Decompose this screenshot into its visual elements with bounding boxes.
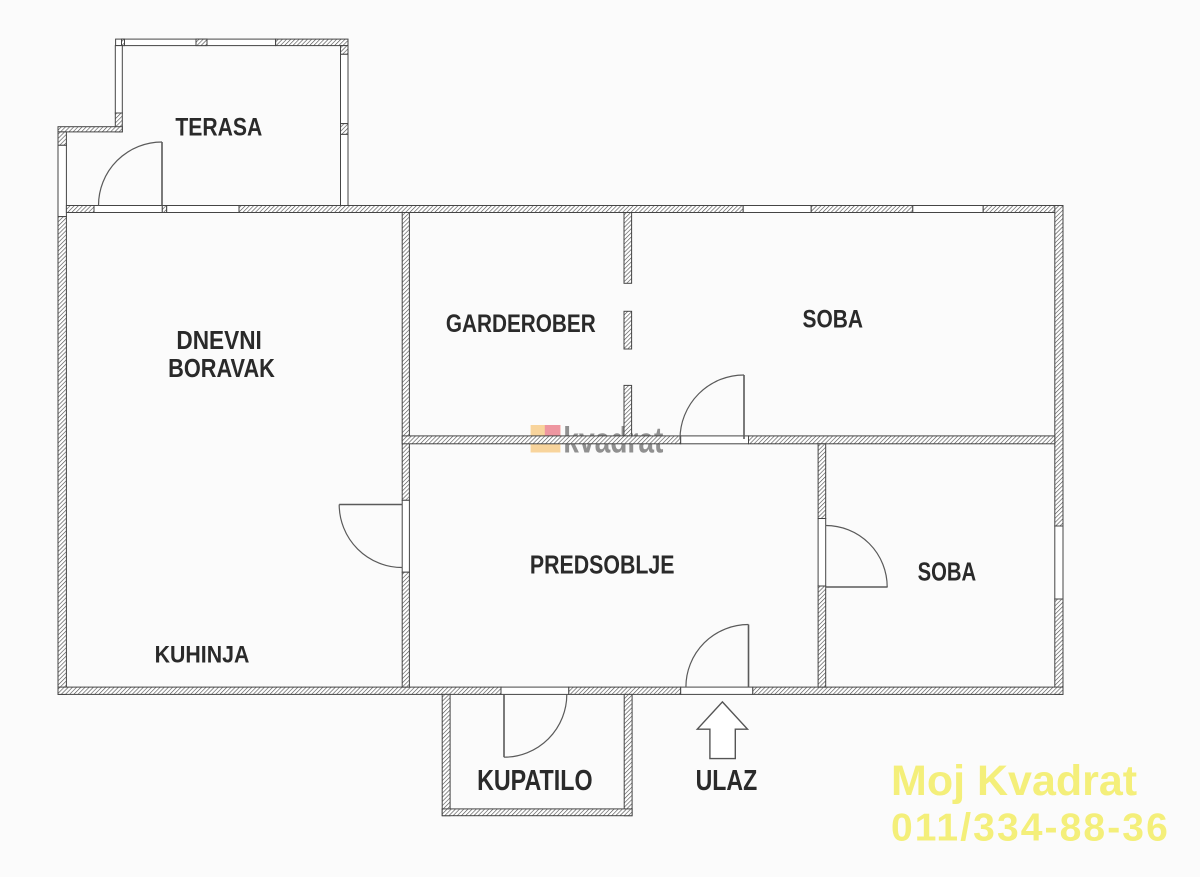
svg-text:TERASA: TERASA [175, 113, 262, 141]
svg-text:Moj Kvadrat: Moj Kvadrat [891, 757, 1137, 805]
svg-text:KUPATILO: KUPATILO [477, 763, 592, 796]
svg-text:ULAZ: ULAZ [696, 763, 758, 796]
svg-text:PREDSOBLJE: PREDSOBLJE [530, 551, 675, 581]
svg-text:DNEVNI: DNEVNI [176, 327, 261, 356]
svg-text:SOBA: SOBA [803, 305, 864, 333]
svg-text:011/334-88-36: 011/334-88-36 [891, 807, 1170, 850]
svg-text:GARDEROBER: GARDEROBER [446, 309, 596, 337]
svg-text:SOBA: SOBA [918, 557, 977, 586]
svg-text:KUHINJA: KUHINJA [155, 640, 250, 667]
svg-text:BORAVAK: BORAVAK [168, 354, 275, 383]
